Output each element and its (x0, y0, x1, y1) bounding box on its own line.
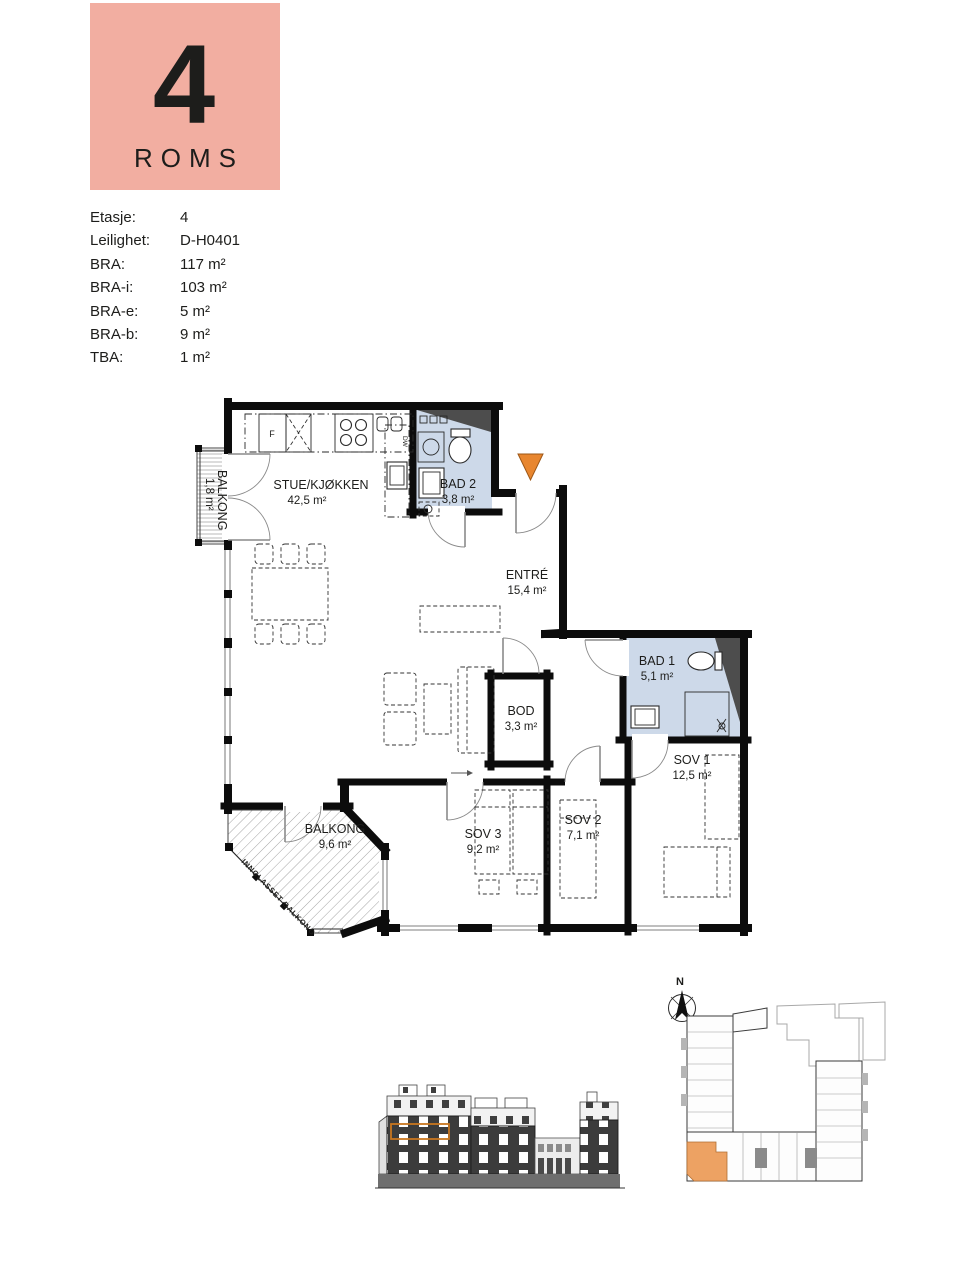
label-balkong-liten: BALKONG (215, 470, 229, 530)
area-sov1: 12,5 m² (673, 770, 712, 782)
spec-label: Etasje: (90, 206, 180, 229)
left-wall-windows (222, 550, 234, 784)
floorplan-page: 4 ROMS Etasje: 4 Leilighet: D-H0401 BRA:… (0, 0, 960, 1280)
spec-row-leilighet: Leilighet: D-H0401 (90, 229, 240, 252)
fridge-label: F (269, 429, 275, 439)
label-sov2: SOV 2 (565, 813, 602, 827)
spec-row-bra-b: BRA-b: 9 m² (90, 323, 240, 346)
toilet-bad2 (449, 429, 471, 463)
spec-value: 1 m² (180, 346, 240, 369)
spec-value: 4 (180, 206, 240, 229)
spec-row-tba: TBA: 1 m² (90, 346, 240, 369)
context-drawings: N (375, 968, 890, 1198)
spec-row-bra-e: BRA-e: 5 m² (90, 300, 240, 323)
area-bad1: 5,1 m² (641, 671, 674, 683)
area-bad2: 3,8 m² (442, 494, 475, 506)
spec-label: BRA-e: (90, 300, 180, 323)
label-sov3: SOV 3 (465, 827, 502, 841)
label-entre: ENTRÉ (506, 567, 548, 582)
spec-value: 103 m² (180, 276, 240, 299)
floor-plan-drawing: F DW (195, 392, 770, 952)
label-bod: BOD (507, 704, 534, 718)
area-balkong-stor: 9,6 m² (319, 839, 352, 851)
area-sov2: 7,1 m² (567, 830, 600, 842)
north-compass: N (669, 976, 696, 1022)
area-sov3: 9,2 m² (467, 844, 500, 856)
spec-value: D-H0401 (180, 229, 240, 252)
label-bad1: BAD 1 (639, 654, 675, 668)
area-stue: 42,5 m² (288, 495, 327, 507)
label-sov1: SOV 1 (674, 753, 711, 767)
dishwasher-label: DW (401, 436, 408, 448)
room-count-label: ROMS (126, 143, 244, 174)
area-bod: 3,3 m² (505, 721, 538, 733)
area-balkong-liten: 1,8 m² (203, 478, 215, 511)
elevation-center-section (535, 1138, 580, 1174)
label-balkong-stor: BALKONG (305, 822, 365, 836)
north-label: N (676, 976, 684, 988)
site-plan: N (669, 976, 886, 1181)
toilet-bad1 (688, 652, 722, 670)
sink-bad1 (631, 706, 659, 728)
sov3-side-window (379, 860, 391, 910)
elevation-ground (378, 1174, 620, 1188)
entrance-marker (518, 454, 543, 480)
spec-value: 117 m² (180, 253, 240, 276)
apartment-specs: Etasje: 4 Leilighet: D-H0401 BRA: 117 m²… (90, 206, 240, 370)
building-elevation (375, 1085, 625, 1188)
area-entre: 15,4 m² (508, 585, 547, 597)
label-bad2: BAD 2 (440, 477, 476, 491)
room-count-number: 4 (153, 29, 217, 141)
spec-value: 9 m² (180, 323, 240, 346)
spec-label: BRA: (90, 253, 180, 276)
spec-label: BRA-i: (90, 276, 180, 299)
spec-row-bra: BRA: 117 m² (90, 253, 240, 276)
spec-value: 5 m² (180, 300, 240, 323)
spec-row-etasje: Etasje: 4 (90, 206, 240, 229)
spec-label: BRA-b: (90, 323, 180, 346)
spec-row-bra-i: BRA-i: 103 m² (90, 276, 240, 299)
spec-label: TBA: (90, 346, 180, 369)
neighbor-buildings (777, 1002, 885, 1066)
label-stue: STUE/KJØKKEN (273, 478, 368, 492)
spec-label: Leilighet: (90, 229, 180, 252)
room-count-badge: 4 ROMS (90, 3, 280, 190)
